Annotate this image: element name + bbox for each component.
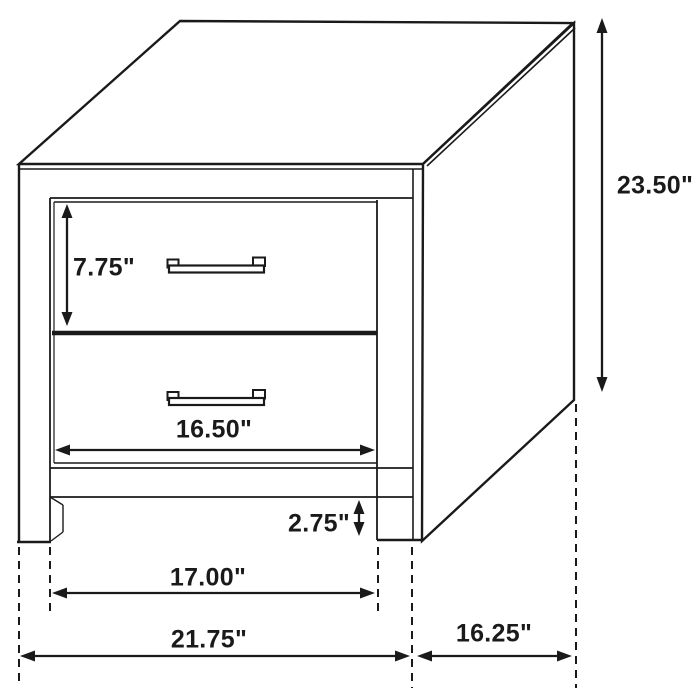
drawer-width-label: 16.50"	[176, 416, 252, 445]
height-label: 23.50"	[617, 172, 693, 201]
clearance-arrow	[354, 500, 365, 536]
depth-arrow	[417, 651, 572, 662]
clearance-label: 2.75"	[288, 510, 350, 539]
overall-width-label: 21.75"	[171, 626, 247, 655]
drawer-2-handle	[168, 390, 266, 405]
nightstand-drawing	[0, 0, 700, 700]
drawer-width-arrow	[55, 445, 375, 456]
height-arrow	[597, 18, 608, 392]
leg-span-label: 17.00"	[170, 564, 246, 593]
dimension-diagram: 7.75" 23.50" 16.50" 2.75" 17.00" 21.75" …	[0, 0, 700, 700]
left-leg	[17, 497, 63, 542]
front-face	[19, 164, 423, 542]
drawer-height-label: 7.75"	[73, 254, 135, 283]
drawer-1-handle	[168, 258, 266, 273]
depth-label: 16.25"	[456, 620, 532, 649]
drawer-height-arrow	[62, 204, 73, 326]
